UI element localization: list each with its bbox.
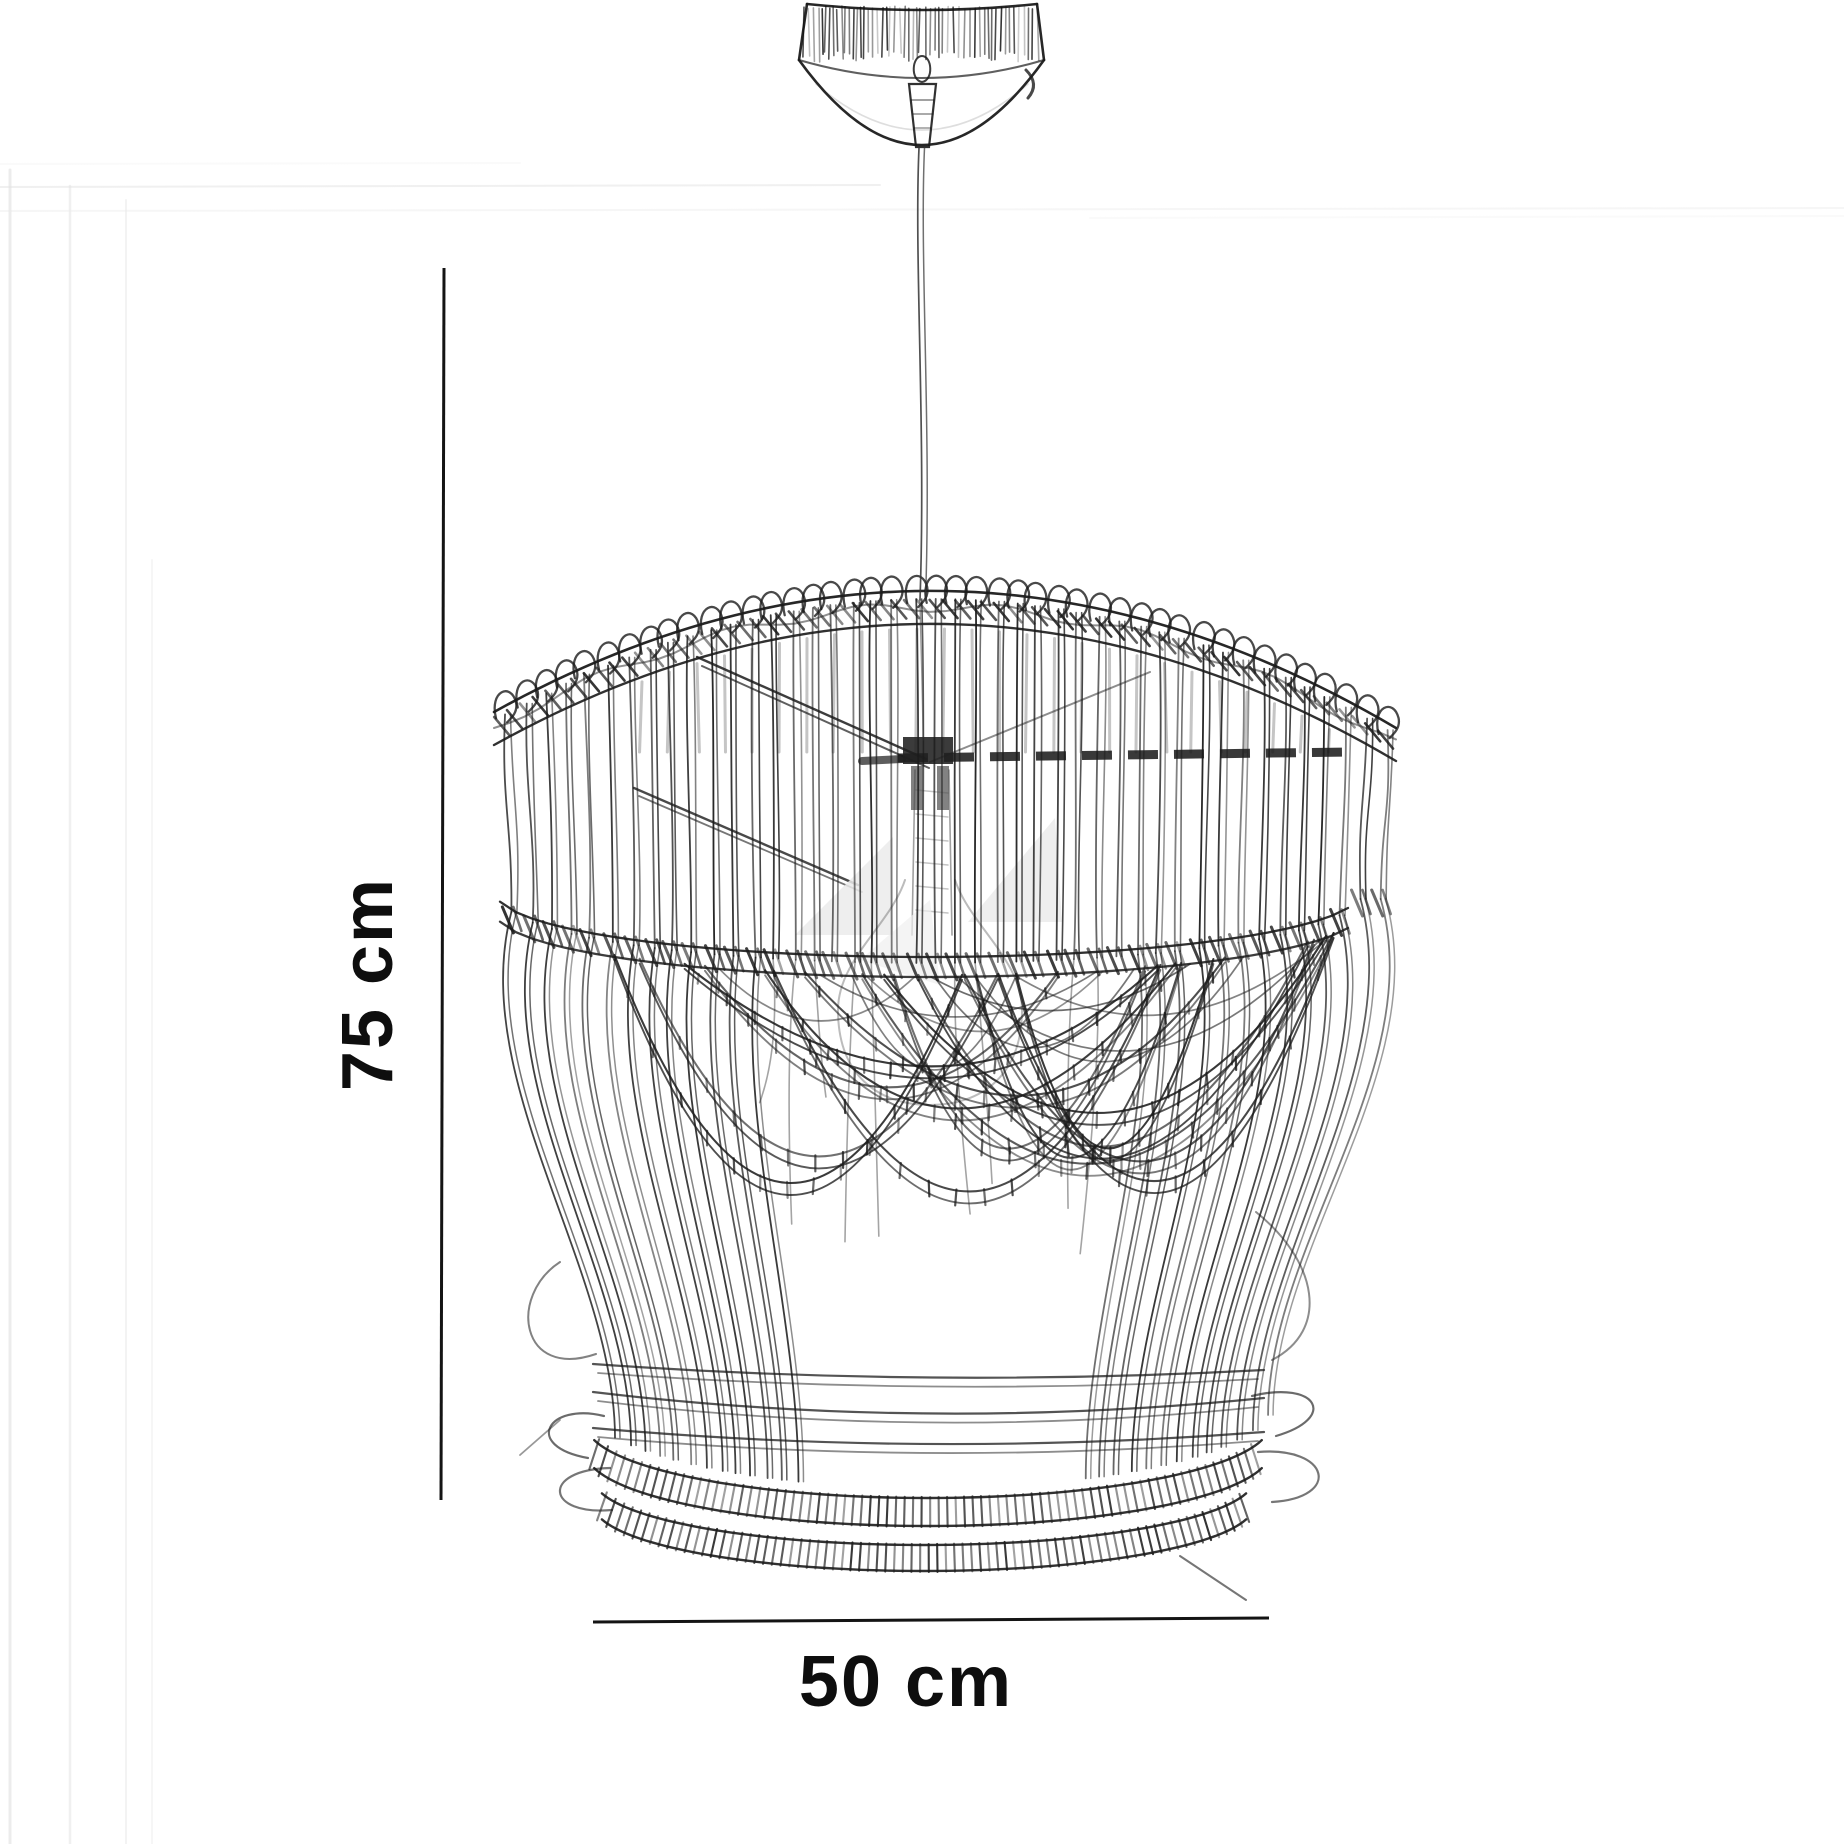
- product-dimension-diagram: 75 cm 50 cm: [0, 0, 1844, 1844]
- woven-rattan-shade: [494, 576, 1399, 1600]
- width-dimension-line: [593, 1618, 1269, 1622]
- pendant-lamp-illustration: [494, 4, 1399, 1600]
- height-dimension-line: [441, 268, 444, 1500]
- width-dimension-label: 50 cm: [799, 1642, 1013, 1722]
- shade-interior-frame: [634, 629, 1348, 935]
- height-dimension-label: 75 cm: [328, 877, 408, 1091]
- ceiling-canopy: [799, 4, 1044, 147]
- wall-background: [0, 163, 1844, 1844]
